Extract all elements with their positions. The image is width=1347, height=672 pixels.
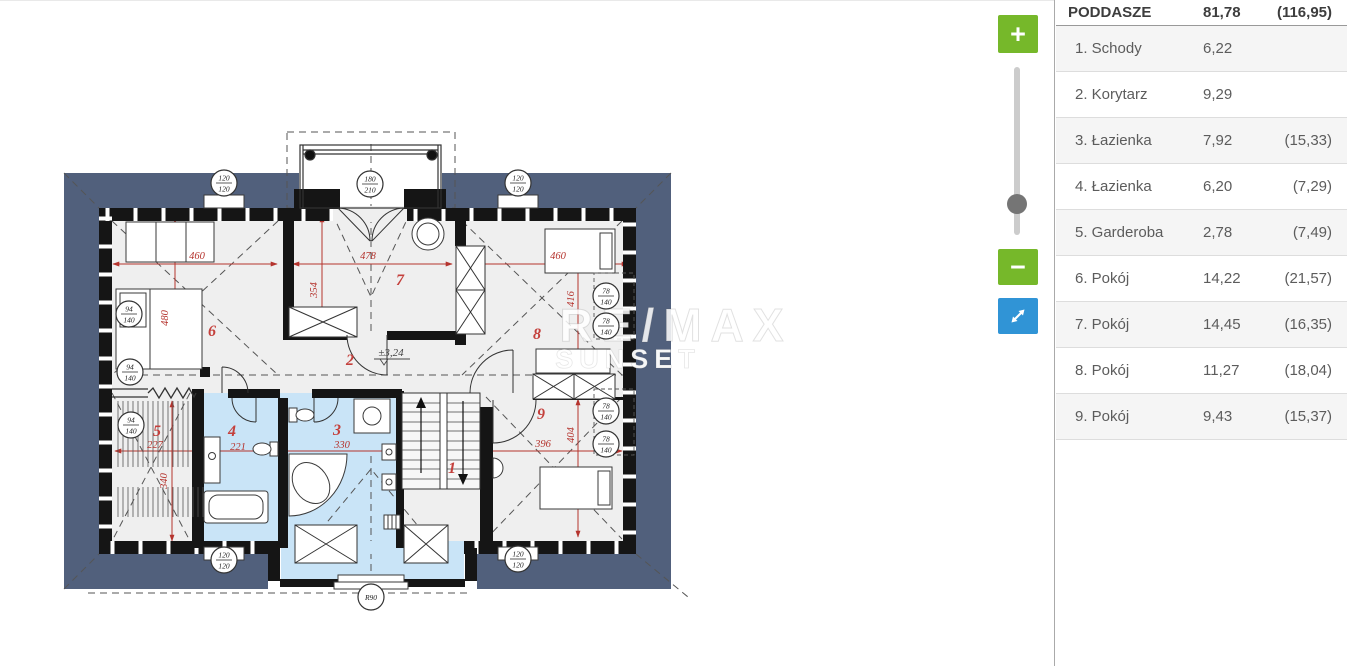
dimension-label: 227	[147, 440, 164, 451]
dimension-label: 221	[230, 442, 246, 453]
room-area: 11,27	[1203, 362, 1267, 379]
fullscreen-button[interactable]	[998, 298, 1038, 334]
room-number: 1	[448, 460, 456, 477]
svg-text:120: 120	[218, 185, 230, 194]
svg-text:120: 120	[512, 550, 524, 559]
window-size-circle: 94140	[116, 301, 142, 327]
svg-text:120: 120	[512, 174, 524, 183]
room-number: 3	[332, 422, 341, 439]
svg-text:140: 140	[125, 427, 137, 436]
watermark: RE/MAX SUNSET	[555, 299, 792, 374]
table-row[interactable]: 3. Łazienka 7,92 (15,33)	[1056, 118, 1347, 164]
window-size-circle: 120120	[211, 170, 237, 196]
svg-text:94: 94	[127, 416, 135, 425]
svg-text:180: 180	[364, 175, 376, 184]
dimension-label: 354	[309, 281, 320, 299]
window-size-circle: 78140	[593, 313, 619, 339]
room-area-total: (18,04)	[1267, 362, 1347, 379]
storey-name: PODDASZE	[1056, 4, 1203, 21]
room-area: 6,20	[1203, 178, 1267, 195]
svg-text:78: 78	[602, 402, 610, 411]
table-row[interactable]: 2. Korytarz 9,29	[1056, 72, 1347, 118]
window-size-circle: 78140	[593, 398, 619, 424]
zoom-slider-handle[interactable]	[1007, 194, 1027, 214]
room-number: 5	[153, 423, 161, 440]
dimension-label: 460	[550, 251, 567, 262]
svg-text:±3,24: ±3,24	[378, 347, 404, 359]
room-list: 1. Schody 6,22 2. Korytarz 9,29 3. Łazie…	[1056, 26, 1347, 440]
table-row[interactable]: 7. Pokój 14,45 (16,35)	[1056, 302, 1347, 348]
svg-text:140: 140	[600, 298, 612, 307]
room-area: 7,92	[1203, 132, 1267, 149]
table-row[interactable]: 5. Garderoba 2,78 (7,49)	[1056, 210, 1347, 256]
room-area: 9,43	[1203, 408, 1267, 425]
dimension-label: 480	[160, 309, 171, 326]
dimension-label: 330	[333, 440, 351, 451]
svg-text:78: 78	[602, 317, 610, 326]
room-name: 3. Łazienka	[1056, 132, 1203, 149]
room-area-total: (21,57)	[1267, 270, 1347, 287]
room-area: 2,78	[1203, 224, 1267, 241]
window-size-circle: 120120	[211, 547, 237, 573]
window-size-circle: 94140	[117, 359, 143, 385]
floorplan-drawing[interactable]: ±3,24 RE/MAX SUNSET 12345678946047846048…	[0, 1, 1055, 667]
dimension-label: 460	[189, 251, 206, 262]
room-area-total: (7,49)	[1267, 224, 1347, 241]
dimension-label: 396	[534, 439, 552, 450]
storey-area-total: (116,95)	[1267, 4, 1347, 21]
room-name: 4. Łazienka	[1056, 178, 1203, 195]
room-area: 14,45	[1203, 316, 1267, 333]
window-size-circle: 180210	[357, 171, 383, 197]
window-size-circle: 94140	[118, 412, 144, 438]
storey-area: 81,78	[1203, 4, 1267, 21]
svg-text:94: 94	[126, 363, 134, 372]
room-name: 8. Pokój	[1056, 362, 1203, 379]
svg-text:140: 140	[600, 446, 612, 455]
svg-text:120: 120	[218, 562, 230, 571]
room-name: 9. Pokój	[1056, 408, 1203, 425]
svg-text:140: 140	[600, 413, 612, 422]
zoom-in-button[interactable]: +	[998, 15, 1038, 53]
room-number: 7	[396, 272, 405, 289]
watermark-line2: SUNSET	[555, 344, 701, 374]
room-area-total: (16,35)	[1267, 316, 1347, 333]
svg-text:94: 94	[125, 305, 133, 314]
room-area: 9,29	[1203, 86, 1267, 103]
room-area: 14,22	[1203, 270, 1267, 287]
svg-text:120: 120	[512, 561, 524, 570]
svg-text:120: 120	[218, 551, 230, 560]
svg-text:140: 140	[123, 316, 135, 325]
room-name: 7. Pokój	[1056, 316, 1203, 333]
table-row[interactable]: 1. Schody 6,22	[1056, 26, 1347, 72]
room-name: 5. Garderoba	[1056, 224, 1203, 241]
panel-header: PODDASZE 81,78 (116,95)	[1056, 0, 1347, 26]
zoom-out-button[interactable]: −	[998, 249, 1038, 285]
svg-text:R90: R90	[364, 593, 377, 602]
table-row[interactable]: 6. Pokój 14,22 (21,57)	[1056, 256, 1347, 302]
room-number: 9	[537, 406, 545, 423]
room-number: 8	[533, 326, 541, 343]
svg-text:120: 120	[218, 174, 230, 183]
room-number: 2	[345, 352, 354, 369]
room-number: 4	[227, 423, 236, 440]
dimension-label: 404	[566, 426, 577, 443]
panel-divider	[1054, 0, 1055, 666]
window-size-circle: R90	[358, 584, 384, 610]
stairs-room1	[402, 393, 480, 489]
dimension-label: 340	[159, 472, 170, 490]
window-size-circle: 78140	[593, 431, 619, 457]
room-area-total: (15,37)	[1267, 408, 1347, 425]
window-size-circle: 120120	[505, 546, 531, 572]
table-row[interactable]: 8. Pokój 11,27 (18,04)	[1056, 348, 1347, 394]
svg-text:78: 78	[602, 435, 610, 444]
svg-text:78: 78	[602, 287, 610, 296]
window-size-circle: 78140	[593, 283, 619, 309]
table-row[interactable]: 4. Łazienka 6,20 (7,29)	[1056, 164, 1347, 210]
dimension-label: 478	[360, 251, 377, 262]
dimension-label: 416	[566, 290, 577, 307]
svg-text:210: 210	[364, 186, 376, 195]
room-area-panel: PODDASZE 81,78 (116,95) 1. Schody 6,22 2…	[1056, 0, 1347, 440]
floorplan-viewer: ±3,24 RE/MAX SUNSET 12345678946047846048…	[0, 0, 1055, 667]
room-area-total: (7,29)	[1267, 178, 1347, 195]
table-row[interactable]: 9. Pokój 9,43 (15,37)	[1056, 394, 1347, 440]
svg-text:140: 140	[600, 328, 612, 337]
room-name: 2. Korytarz	[1056, 86, 1203, 103]
svg-text:120: 120	[512, 185, 524, 194]
svg-text:140: 140	[124, 374, 136, 383]
room-number: 6	[208, 323, 216, 340]
expand-icon	[1009, 307, 1027, 325]
room-area: 6,22	[1203, 40, 1267, 57]
room-area-total: (15,33)	[1267, 132, 1347, 149]
room-name: 1. Schody	[1056, 40, 1203, 57]
room-name: 6. Pokój	[1056, 270, 1203, 287]
window-size-circle: 120120	[505, 170, 531, 196]
